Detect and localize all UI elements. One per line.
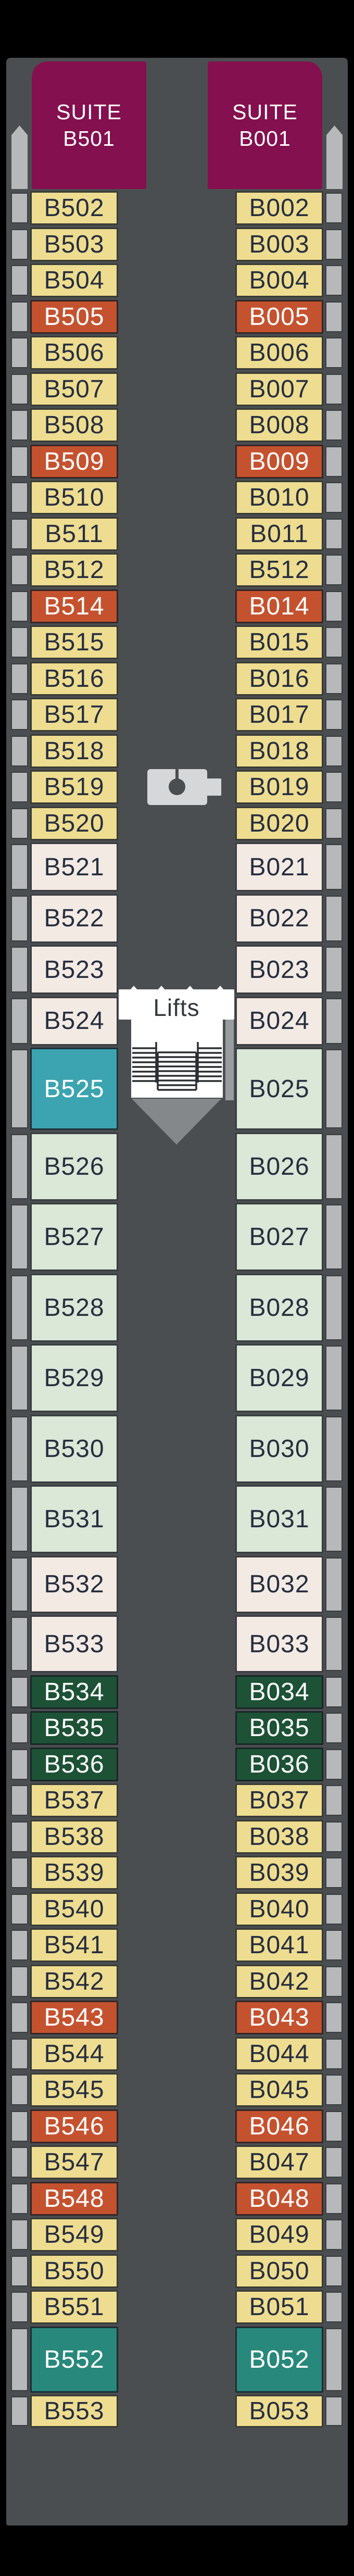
balcony-strip	[11, 229, 28, 260]
cabin-row-B529: B529	[30, 1344, 118, 1412]
cabin-B537[interactable]: B537	[30, 1783, 118, 1817]
cabin-row-B010: B010	[235, 481, 323, 514]
cabin-B504[interactable]: B504	[30, 263, 118, 297]
cabin-row-B509: B509	[30, 445, 118, 479]
cabin-B011[interactable]: B011	[235, 517, 323, 551]
balcony-strip	[11, 1857, 28, 1888]
cabin-row-B538: B538	[30, 1820, 118, 1854]
cabin-row-B016: B016	[235, 662, 323, 696]
balcony-strip	[11, 1677, 28, 1707]
cabin-row-B022: B022	[235, 894, 323, 943]
lifts-label: Lifts	[153, 994, 199, 1021]
cabin-B021[interactable]: B021	[235, 843, 323, 891]
cabin-B531[interactable]: B531	[30, 1485, 118, 1553]
cabin-row-B018: B018	[235, 734, 323, 768]
cabin-B516[interactable]: B516	[30, 662, 118, 696]
balcony-strip	[11, 2111, 28, 2142]
suite-balcony-strip	[11, 125, 28, 189]
cabin-B550[interactable]: B550	[30, 2254, 118, 2288]
cabin-B030[interactable]: B030	[235, 1415, 323, 1483]
balcony-strip	[325, 1557, 343, 1612]
cabin-B519[interactable]: B519	[30, 770, 118, 804]
cabin-row-B549: B549	[30, 2218, 118, 2252]
balcony-strip	[11, 772, 28, 802]
cabin-row-B017: B017	[235, 698, 323, 732]
balcony-strip	[11, 265, 28, 296]
cabin-B541[interactable]: B541	[30, 1928, 118, 1962]
cabin-B016[interactable]: B016	[235, 662, 323, 696]
suite-b501[interactable]: SUITE B501	[32, 61, 146, 189]
cabin-B528[interactable]: B528	[30, 1274, 118, 1342]
balcony-strip	[325, 1617, 343, 1671]
cabin-row-B515: B515	[30, 625, 118, 659]
cabin-row-B027: B027	[235, 1203, 323, 1271]
balcony-strip	[325, 1821, 343, 1852]
cabin-B010[interactable]: B010	[235, 481, 323, 514]
balcony-strip	[325, 1857, 343, 1888]
cabin-row-B503: B503	[30, 228, 118, 261]
balcony-strip	[11, 1049, 28, 1128]
balcony-strip	[11, 663, 28, 694]
suite-label-line1: SUITE	[56, 99, 122, 125]
cabin-B536[interactable]: B536	[30, 1748, 118, 1781]
balcony-strip	[11, 374, 28, 405]
cabin-row-B023: B023	[235, 945, 323, 994]
cabin-B521[interactable]: B521	[30, 843, 118, 891]
cabin-B506[interactable]: B506	[30, 336, 118, 370]
balcony-strip	[11, 1785, 28, 1816]
cabin-B530[interactable]: B530	[30, 1415, 118, 1483]
balcony-strip	[325, 410, 343, 441]
cabin-B002[interactable]: B002	[235, 191, 323, 225]
balcony-strip	[11, 1966, 28, 1997]
cabin-B544[interactable]: B544	[30, 2037, 118, 2071]
cabin-row-B014: B014	[235, 589, 323, 623]
lifts-block: Lifts	[119, 986, 234, 1204]
cabin-B025[interactable]: B025	[235, 1048, 323, 1130]
cabin-row-B512: B512	[235, 553, 323, 587]
cabin-B515[interactable]: B515	[30, 625, 118, 659]
cabin-row-B024: B024	[235, 997, 323, 1046]
cabin-row-B547: B547	[30, 2145, 118, 2179]
balcony-strip	[325, 2328, 343, 2391]
cabin-B535[interactable]: B535	[30, 1711, 118, 1745]
balcony-strip	[11, 844, 28, 890]
cabin-B008[interactable]: B008	[235, 408, 323, 442]
cabin-B542[interactable]: B542	[30, 1965, 118, 1999]
cabin-row-B516: B516	[30, 662, 118, 696]
balcony-strip	[325, 2075, 343, 2105]
balcony-strip	[325, 229, 343, 260]
balcony-strip	[325, 1134, 343, 1199]
cabin-row-B046: B046	[235, 2109, 323, 2143]
balcony-strip	[11, 555, 28, 585]
cabin-row-B039: B039	[235, 1856, 323, 1890]
cabin-B529[interactable]: B529	[30, 1344, 118, 1412]
balcony-strip	[325, 1894, 343, 1925]
suite-label-line2: B001	[239, 125, 291, 152]
balcony-strip	[11, 301, 28, 332]
cabin-B523[interactable]: B523	[30, 945, 118, 994]
balcony-strip	[325, 1487, 343, 1552]
balcony-strip	[325, 896, 343, 941]
cabin-row-B511: B511	[30, 517, 118, 551]
cabin-row-B051: B051	[235, 2290, 323, 2324]
cabin-B502[interactable]: B502	[30, 191, 118, 225]
cabin-B503[interactable]: B503	[30, 228, 118, 261]
cabin-row-B553: B553	[30, 2395, 118, 2428]
balcony-strip	[11, 2292, 28, 2322]
cabin-row-B021: B021	[235, 843, 323, 891]
balcony-strip	[325, 2039, 343, 2069]
cabin-row-B005: B005	[235, 300, 323, 334]
suite-b001[interactable]: SUITE B001	[208, 61, 322, 189]
balcony-strip	[325, 2256, 343, 2286]
balcony-strip	[11, 1557, 28, 1612]
balcony-strip	[325, 1966, 343, 1997]
balcony-strip	[325, 1677, 343, 1707]
balcony-strip	[325, 2183, 343, 2214]
cabin-B047[interactable]: B047	[235, 2145, 323, 2179]
cabin-row-B548: B548	[30, 2182, 118, 2216]
balcony-strip	[11, 337, 28, 368]
balcony-strip	[11, 2256, 28, 2286]
cabin-B514[interactable]: B514	[30, 589, 118, 623]
cabin-row-B517: B517	[30, 698, 118, 732]
cabin-row-B502: B502	[30, 191, 118, 225]
balcony-strip	[11, 947, 28, 992]
cabin-row-B032: B032	[235, 1556, 323, 1613]
cabin-row-B522: B522	[30, 894, 118, 943]
balcony-strip	[325, 998, 343, 1044]
deck-plan: SUITE B501 SUITE B001 B502B503B504B505B5…	[6, 58, 348, 2525]
suite-balcony-strip	[326, 125, 343, 189]
cabin-B510[interactable]: B510	[30, 481, 118, 514]
cabin-row-B047: B047	[235, 2145, 323, 2179]
cabin-row-B038: B038	[235, 1820, 323, 1854]
cabin-B524[interactable]: B524	[30, 997, 118, 1046]
cabin-B029[interactable]: B029	[235, 1344, 323, 1412]
cabin-B526[interactable]: B526	[30, 1133, 118, 1201]
cabin-row-B037: B037	[235, 1783, 323, 1817]
cabin-B041[interactable]: B041	[235, 1928, 323, 1962]
cabin-row-B008: B008	[235, 408, 323, 442]
cabin-row-B053: B053	[235, 2395, 323, 2428]
starboard-cabin-column: B002B003B004B005B006B007B008B009B010B011…	[235, 191, 323, 2430]
cabin-B043[interactable]: B043	[235, 2001, 323, 2034]
facility-icon	[147, 769, 221, 805]
cabin-row-B539: B539	[30, 1856, 118, 1890]
balcony-strip	[325, 699, 343, 730]
balcony-strip	[325, 446, 343, 477]
cabin-row-B029: B029	[235, 1344, 323, 1412]
balcony-strip	[325, 374, 343, 405]
balcony-strip	[325, 555, 343, 585]
cabin-row-B048: B048	[235, 2182, 323, 2216]
cabin-B540[interactable]: B540	[30, 1892, 118, 1926]
cabin-row-B049: B049	[235, 2218, 323, 2252]
cabin-B512[interactable]: B512	[30, 553, 118, 587]
cabin-row-B526: B526	[30, 1133, 118, 1201]
cabin-row-B536: B536	[30, 1748, 118, 1781]
cabin-B512[interactable]: B512	[235, 553, 323, 587]
balcony-strip	[325, 2002, 343, 2033]
cabin-row-B031: B031	[235, 1485, 323, 1553]
balcony-strip	[11, 1713, 28, 1743]
suite-label-line1: SUITE	[232, 99, 298, 125]
cabin-row-B026: B026	[235, 1133, 323, 1201]
cabin-row-B004: B004	[235, 263, 323, 297]
cabin-B042[interactable]: B042	[235, 1965, 323, 1999]
cabin-row-B002: B002	[235, 191, 323, 225]
cabin-B549[interactable]: B549	[30, 2218, 118, 2252]
cabin-row-B035: B035	[235, 1711, 323, 1745]
cabin-B505[interactable]: B505	[30, 300, 118, 334]
balcony-strip	[11, 1416, 28, 1481]
cabin-B545[interactable]: B545	[30, 2073, 118, 2107]
cabin-row-B034: B034	[235, 1675, 323, 1709]
balcony-strip	[11, 446, 28, 477]
balcony-strip	[325, 1785, 343, 1816]
balcony-strip	[11, 627, 28, 658]
cabin-B009[interactable]: B009	[235, 445, 323, 479]
cabin-row-B534: B534	[30, 1675, 118, 1709]
cabin-B014[interactable]: B014	[235, 589, 323, 623]
cabin-B027[interactable]: B027	[235, 1203, 323, 1271]
cabin-B018[interactable]: B018	[235, 734, 323, 768]
balcony-strip	[11, 1930, 28, 1961]
cabin-B532[interactable]: B532	[30, 1556, 118, 1613]
cabin-row-B011: B011	[235, 517, 323, 551]
balcony-strip	[11, 410, 28, 441]
cabin-row-B025: B025	[235, 1048, 323, 1130]
cabin-row-B552: B552	[30, 2327, 118, 2393]
cabin-row-B028: B028	[235, 1274, 323, 1342]
cabin-row-B537: B537	[30, 1783, 118, 1817]
balcony-strip	[11, 2075, 28, 2105]
balcony-strip	[11, 193, 28, 223]
cabin-row-B015: B015	[235, 625, 323, 659]
cabin-B552[interactable]: B552	[30, 2327, 118, 2393]
balcony-strip	[11, 1346, 28, 1411]
balcony-strip	[325, 1416, 343, 1481]
cabin-B527[interactable]: B527	[30, 1203, 118, 1271]
cabin-B517[interactable]: B517	[30, 698, 118, 732]
cabin-B022[interactable]: B022	[235, 894, 323, 943]
balcony-strip	[11, 1487, 28, 1552]
balcony-strip	[11, 896, 28, 941]
cabin-B553[interactable]: B553	[30, 2395, 118, 2428]
cabin-B036[interactable]: B036	[235, 1748, 323, 1781]
cabin-B035[interactable]: B035	[235, 1711, 323, 1745]
cabin-B031[interactable]: B031	[235, 1485, 323, 1553]
cabin-row-B052: B052	[235, 2327, 323, 2393]
cabin-row-B020: B020	[235, 807, 323, 840]
cabin-row-B033: B033	[235, 1615, 323, 1673]
cabin-row-B040: B040	[235, 1892, 323, 1926]
cabin-row-B528: B528	[30, 1274, 118, 1342]
cabin-B033[interactable]: B033	[235, 1615, 323, 1673]
cabin-B546[interactable]: B546	[30, 2109, 118, 2143]
cabin-row-B535: B535	[30, 1711, 118, 1745]
cabin-B028[interactable]: B028	[235, 1274, 323, 1342]
cabin-B518[interactable]: B518	[30, 734, 118, 768]
cabin-B520[interactable]: B520	[30, 807, 118, 840]
cabin-B003[interactable]: B003	[235, 228, 323, 261]
cabin-row-B514: B514	[30, 589, 118, 623]
cabin-B548[interactable]: B548	[30, 2182, 118, 2216]
cabin-B050[interactable]: B050	[235, 2254, 323, 2288]
cabin-B046[interactable]: B046	[235, 2109, 323, 2143]
balcony-strip	[11, 2328, 28, 2391]
cabin-row-B540: B540	[30, 1892, 118, 1926]
cabin-B543[interactable]: B543	[30, 2001, 118, 2034]
cabin-row-B508: B508	[30, 408, 118, 442]
cabin-B034[interactable]: B034	[235, 1675, 323, 1709]
cabin-B511[interactable]: B511	[30, 517, 118, 551]
cabin-row-B527: B527	[30, 1203, 118, 1271]
cabin-row-B045: B045	[235, 2073, 323, 2107]
balcony-strip	[325, 2219, 343, 2250]
cabin-row-B533: B533	[30, 1615, 118, 1673]
cabin-B015[interactable]: B015	[235, 625, 323, 659]
cabin-row-B523: B523	[30, 945, 118, 994]
cabin-B004[interactable]: B004	[235, 263, 323, 297]
balcony-strip	[11, 736, 28, 766]
balcony-strip	[325, 772, 343, 802]
cabin-B032[interactable]: B032	[235, 1556, 323, 1613]
balcony-strip	[11, 998, 28, 1044]
balcony-strip	[11, 1617, 28, 1671]
cabin-row-B520: B520	[30, 807, 118, 840]
cabin-B551[interactable]: B551	[30, 2290, 118, 2324]
cabin-B538[interactable]: B538	[30, 1820, 118, 1854]
cabin-row-B510: B510	[30, 481, 118, 514]
balcony-strip	[11, 591, 28, 622]
cabin-row-B551: B551	[30, 2290, 118, 2324]
balcony-strip	[11, 2147, 28, 2178]
balcony-strip	[325, 1713, 343, 1743]
cabin-B049[interactable]: B049	[235, 2218, 323, 2252]
balcony-strip	[325, 627, 343, 658]
balcony-strip	[325, 1049, 343, 1128]
cabin-B040[interactable]: B040	[235, 1892, 323, 1926]
cabin-B533[interactable]: B533	[30, 1615, 118, 1673]
cabin-row-B019: B019	[235, 770, 323, 804]
balcony-strip	[11, 699, 28, 730]
cabin-B006[interactable]: B006	[235, 336, 323, 370]
cabin-B525[interactable]: B525	[30, 1048, 118, 1130]
balcony-strip	[11, 2219, 28, 2250]
balcony-strip	[325, 1275, 343, 1340]
cabin-B038[interactable]: B038	[235, 1820, 323, 1854]
balcony-strip	[11, 1134, 28, 1199]
balcony-strip	[11, 1275, 28, 1340]
cabin-row-B543: B543	[30, 2001, 118, 2034]
cabin-B547[interactable]: B547	[30, 2145, 118, 2179]
cabin-row-B545: B545	[30, 2073, 118, 2107]
cabin-B052[interactable]: B052	[235, 2327, 323, 2393]
cabin-B017[interactable]: B017	[235, 698, 323, 732]
balcony-strip	[325, 1930, 343, 1961]
lift-arrow-icon	[132, 1099, 221, 1145]
cabin-row-B531: B531	[30, 1485, 118, 1553]
cabin-B037[interactable]: B037	[235, 1783, 323, 1817]
cabin-row-B041: B041	[235, 1928, 323, 1962]
cabin-row-B524: B524	[30, 997, 118, 1046]
cabin-B539[interactable]: B539	[30, 1856, 118, 1890]
cabin-row-B505: B505	[30, 300, 118, 334]
balcony-strip	[325, 2292, 343, 2322]
balcony-strip	[325, 808, 343, 839]
balcony-strip	[11, 1749, 28, 1780]
balcony-strip	[11, 2039, 28, 2069]
cabin-row-B544: B544	[30, 2037, 118, 2071]
cabin-B048[interactable]: B048	[235, 2182, 323, 2216]
cabin-B024[interactable]: B024	[235, 997, 323, 1046]
balcony-strip	[11, 808, 28, 839]
balcony-strip	[325, 337, 343, 368]
cabin-B020[interactable]: B020	[235, 807, 323, 840]
cabin-row-B519: B519	[30, 770, 118, 804]
cabin-row-B518: B518	[30, 734, 118, 768]
cabin-row-B542: B542	[30, 1965, 118, 1999]
cabin-B051[interactable]: B051	[235, 2290, 323, 2324]
cabin-B053[interactable]: B053	[235, 2395, 323, 2428]
balcony-strip	[325, 519, 343, 549]
port-cabin-column: B502B503B504B505B506B507B508B509B510B511…	[30, 191, 118, 2430]
balcony-strip	[325, 265, 343, 296]
balcony-strip	[11, 482, 28, 513]
cabin-row-B007: B007	[235, 372, 323, 406]
balcony-strip	[325, 193, 343, 223]
balcony-strip	[11, 2002, 28, 2033]
balcony-strip	[325, 1749, 343, 1780]
cabin-row-B512: B512	[30, 553, 118, 587]
cabin-B045[interactable]: B045	[235, 2073, 323, 2107]
cabin-B534[interactable]: B534	[30, 1675, 118, 1709]
cabin-B507[interactable]: B507	[30, 372, 118, 406]
cabin-row-B003: B003	[235, 228, 323, 261]
cabin-B019[interactable]: B019	[235, 770, 323, 804]
cabin-B039[interactable]: B039	[235, 1856, 323, 1890]
cabin-B026[interactable]: B026	[235, 1133, 323, 1201]
balcony-strip	[325, 1204, 343, 1270]
cabin-B044[interactable]: B044	[235, 2037, 323, 2071]
cabin-B522[interactable]: B522	[30, 894, 118, 943]
cabin-B007[interactable]: B007	[235, 372, 323, 406]
cabin-row-B532: B532	[30, 1556, 118, 1613]
balcony-strip	[11, 1821, 28, 1852]
cabin-row-B506: B506	[30, 336, 118, 370]
balcony-strip	[11, 519, 28, 549]
cabin-row-B050: B050	[235, 2254, 323, 2288]
cabin-B509[interactable]: B509	[30, 445, 118, 479]
balcony-strip	[325, 591, 343, 622]
cabin-B508[interactable]: B508	[30, 408, 118, 442]
balcony-strip	[325, 2147, 343, 2178]
balcony-strip	[325, 844, 343, 890]
cabin-B023[interactable]: B023	[235, 945, 323, 994]
cabin-B005[interactable]: B005	[235, 300, 323, 334]
balcony-strip	[325, 482, 343, 513]
balcony-strip	[325, 2396, 343, 2426]
cabin-row-B036: B036	[235, 1748, 323, 1781]
cabin-row-B006: B006	[235, 336, 323, 370]
cabin-row-B504: B504	[30, 263, 118, 297]
cabin-row-B043: B043	[235, 2001, 323, 2034]
cabin-row-B530: B530	[30, 1415, 118, 1483]
